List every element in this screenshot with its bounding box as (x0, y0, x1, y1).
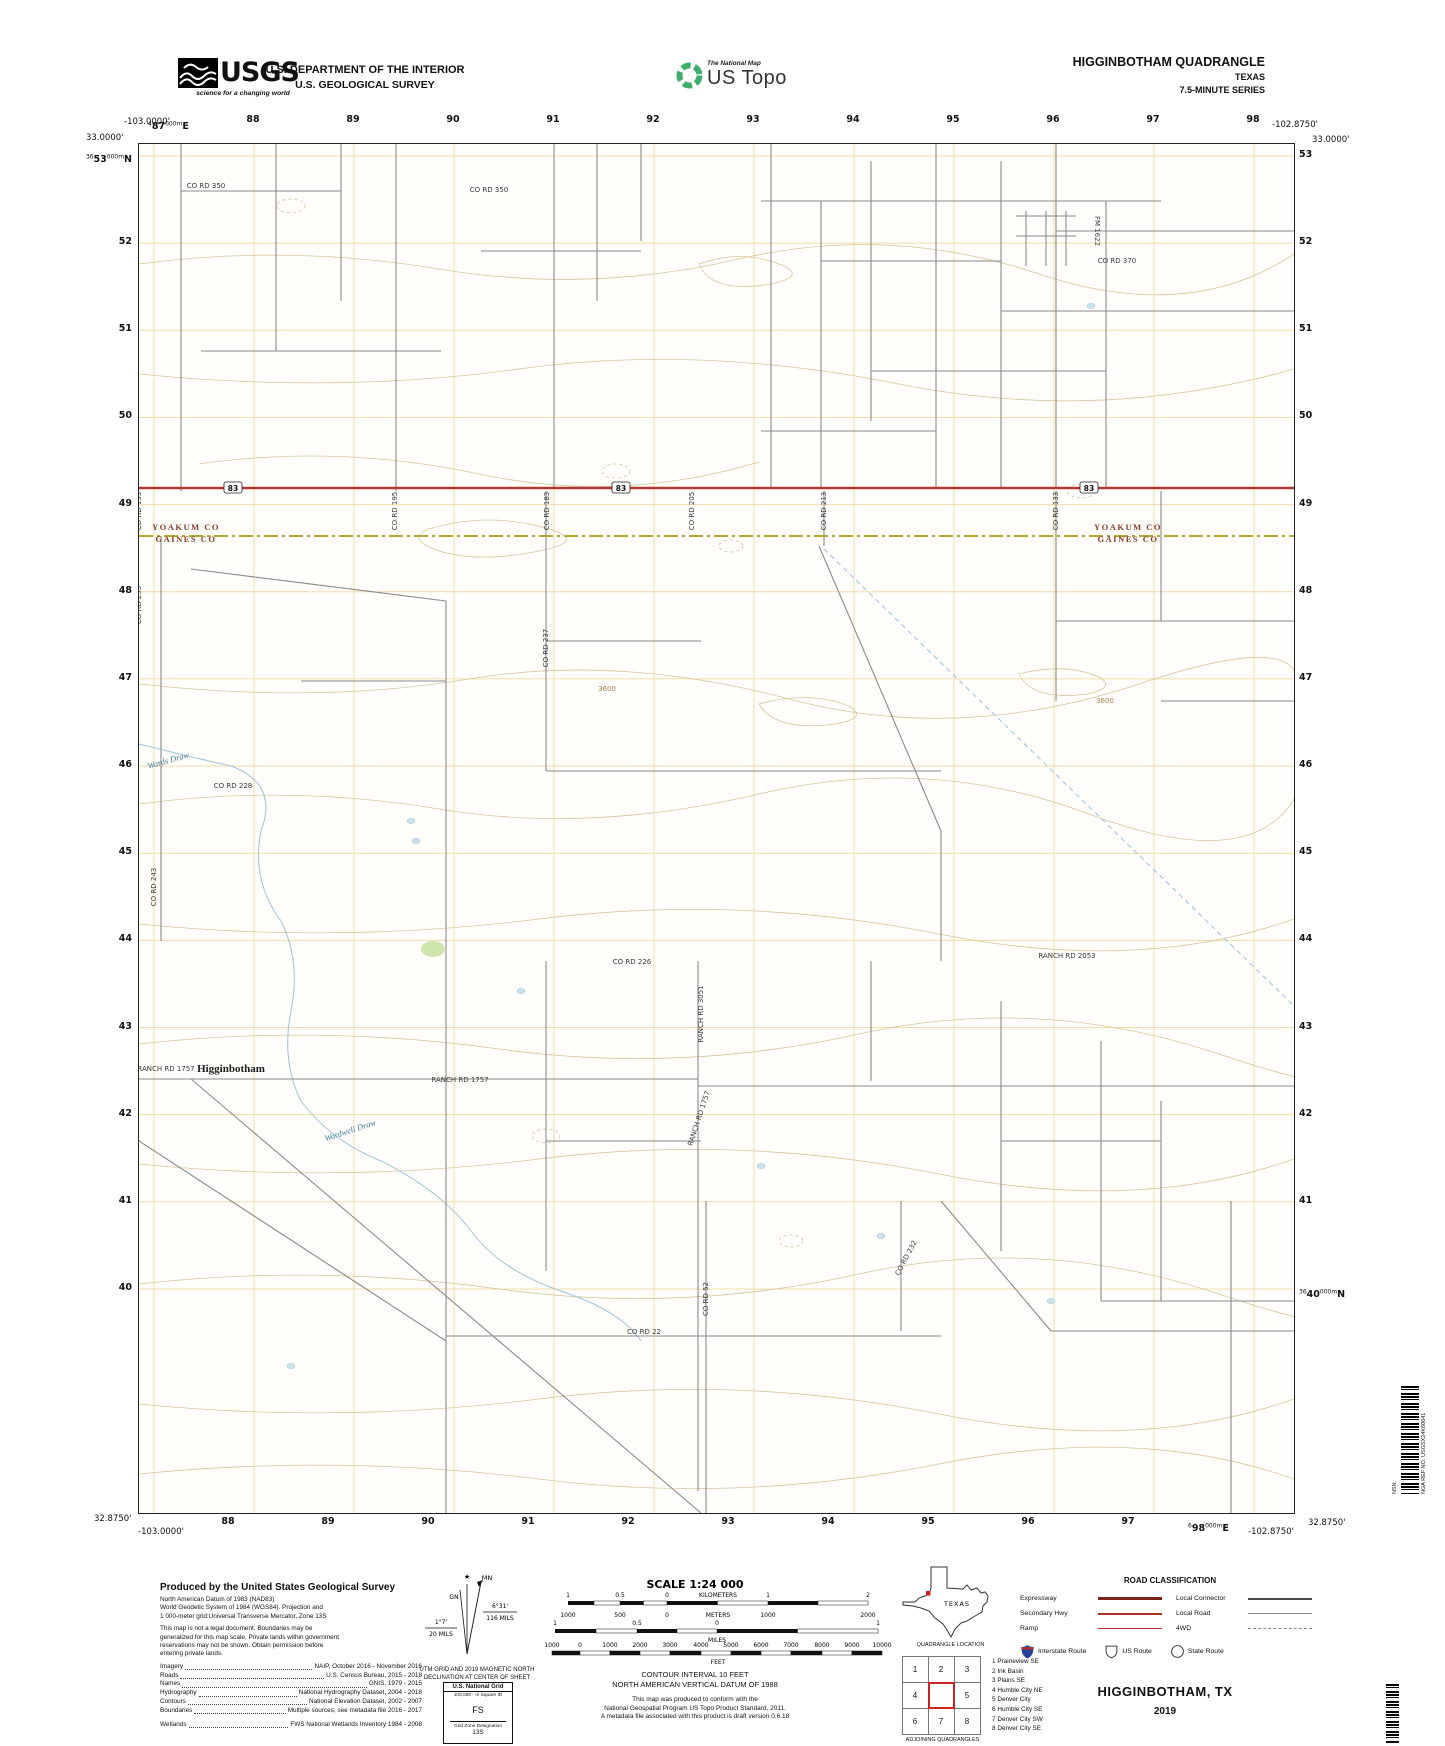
adjoining-cell: 5 (954, 1682, 981, 1709)
svg-text:1000: 1000 (602, 1642, 617, 1649)
grid-easting-top: 88 (238, 114, 268, 125)
road-classification-block: ROAD CLASSIFICATION ExpresswayLocal Conn… (1020, 1576, 1320, 1659)
stream-layer (139, 744, 641, 1341)
barcode (1401, 1386, 1419, 1494)
svg-text:FEET: FEET (711, 1659, 726, 1666)
map-label: CO RD 243 (150, 868, 158, 906)
dept-line2: U.S. GEOLOGICAL SURVEY (230, 79, 500, 91)
grid-northing-right: 41 (1299, 1195, 1339, 1206)
grid-northing-right: 43 (1299, 1021, 1339, 1032)
quadrangle-location-caption: QUADRANGLE LOCATION (893, 1642, 1008, 1648)
svg-text:METERS: METERS (706, 1612, 731, 1619)
map-label: CO RD 205 (688, 492, 696, 530)
grid-northing-left: 43 (98, 1021, 132, 1032)
dept-line1: U.S. DEPARTMENT OF THE INTERIOR (230, 64, 500, 76)
map-label: CO RD 155 (139, 492, 143, 530)
standard-note-1: This map was produced to conform with th… (530, 1696, 860, 1705)
map-label: CO RD 52 (702, 1282, 710, 1316)
full-easting-bottom-right: 698000mE (1188, 1516, 1229, 1535)
grid-northing-right: 45 (1299, 846, 1339, 857)
map-label: CO RD 228 (214, 782, 252, 790)
contour-note-block: CONTOUR INTERVAL 10 FEET NORTH AMERICAN … (530, 1670, 860, 1722)
route-shield-legend-item: US Route (1104, 1644, 1151, 1659)
pond-layer (287, 304, 1095, 1369)
grid-easting-top: 89 (338, 114, 368, 125)
grid-easting-bottom: 92 (613, 1516, 643, 1527)
svg-text:20 MILS: 20 MILS (429, 1631, 453, 1638)
route-shield-legend-item: Interstate Route (1020, 1644, 1086, 1659)
grid-northing-left: 50 (98, 410, 132, 421)
svg-text:1000: 1000 (560, 1612, 575, 1619)
grid-northing-left: 45 (98, 846, 132, 857)
grid-easting-bottom: 94 (813, 1516, 843, 1527)
usgs-tagline: science for a changing world (178, 90, 308, 97)
nga-ref-label: NGA REF NO. USGSX24K60641 (1421, 1386, 1428, 1494)
map-label: CO RD 233 (139, 586, 143, 624)
usng-zone-label: Grid Zone Designation (444, 1722, 512, 1729)
map-label: CO RD 350 (187, 182, 225, 190)
grid-northing-left: 48 (98, 585, 132, 596)
utm-grid-layer (139, 144, 1294, 1513)
usng-subtitle: 100,000 - m Square ID (444, 1692, 512, 1698)
adjoining-cell: 2 (928, 1656, 955, 1683)
grid-northing-right: 46 (1299, 759, 1339, 770)
legal-lines: This map is not a legal document. Bounda… (160, 1625, 422, 1659)
grid-easting-top: 98 (1238, 114, 1268, 125)
scale-bar-block: SCALE 1:24 00010.5012KILOMETERS100050001… (480, 1576, 910, 1668)
vegetation-patch (421, 941, 445, 957)
svg-text:1: 1 (876, 1620, 880, 1627)
svg-text:1: 1 (766, 1592, 770, 1599)
map-label: Wardwell Draw (323, 1117, 377, 1143)
credit-row: BoundariesMultiple sources; see metadata… (160, 1707, 422, 1716)
map-label: RANCH RD 1757 (139, 1065, 195, 1073)
grid-northing-left: 40 (98, 1282, 132, 1293)
usng-title: U.S. National Grid (444, 1683, 512, 1692)
svg-text:SCALE 1:24 000: SCALE 1:24 000 (646, 1578, 743, 1591)
adjoining-cell: 3 (954, 1656, 981, 1683)
interstate-shield-icon (1020, 1644, 1035, 1659)
map-label: GAINES CO (1098, 534, 1159, 544)
map-label: CO RD 237 (542, 629, 550, 667)
svg-text:0: 0 (715, 1620, 719, 1627)
nsn-label: NSN. (1392, 1386, 1399, 1494)
grid-northing-right: 53 (1299, 149, 1339, 160)
state-outline-texas: TEXAS (895, 1566, 1005, 1640)
national-map-label: The National Map (707, 60, 787, 67)
svg-text:GN: GN (449, 1594, 458, 1601)
svg-text:1000: 1000 (544, 1642, 559, 1649)
datum-line: North American Datum of 1983 (NAD83) (160, 1596, 422, 1604)
svg-text:5000: 5000 (723, 1642, 738, 1649)
svg-text:8000: 8000 (814, 1642, 829, 1649)
credit-row: HydrographyNational Hydrography Dataset,… (160, 1689, 422, 1698)
map-label: 3600 (598, 685, 616, 693)
svg-text:7000: 7000 (783, 1642, 798, 1649)
map-label-layer: CO RD 350CO RD 350FM 1622CO RD 370CO RD … (139, 182, 1162, 1336)
grid-northing-right: 42 (1299, 1108, 1339, 1119)
svg-text:1000: 1000 (760, 1612, 775, 1619)
road-class-row: ExpresswayLocal Connector (1020, 1591, 1320, 1606)
road-classification-rows: ExpresswayLocal ConnectorSecondary HwyLo… (1020, 1591, 1320, 1636)
svg-text:83: 83 (1084, 484, 1094, 493)
legal-line: generalized for this map scale. Private … (160, 1634, 422, 1642)
sheet-name: HIGGINBOTHAM, TX (1050, 1684, 1280, 1699)
adjoining-cell: 4 (902, 1682, 929, 1709)
map-label: CO RD 22 (627, 1328, 661, 1336)
map-label: RANCH RD 1757 (686, 1090, 711, 1147)
map-label: Higginbotham (197, 1063, 265, 1075)
depression-contour-layer (277, 199, 1095, 1247)
map-label: RANCH RD 2053 (1038, 952, 1095, 960)
map-label: CO RD 226 (613, 958, 652, 966)
standard-note-3: A metadata file associated with this pro… (530, 1713, 860, 1722)
svg-text:6000: 6000 (753, 1642, 768, 1649)
adjoining-grid: 12345678 (902, 1656, 980, 1734)
svg-text:0: 0 (665, 1592, 669, 1599)
adjoining-name: 2 Ink Basin (992, 1667, 1102, 1677)
grid-easting-top: 92 (638, 114, 668, 125)
svg-text:3000: 3000 (662, 1642, 677, 1649)
grid-easting-bottom: 93 (713, 1516, 743, 1527)
road-classification-title: ROAD CLASSIFICATION (1020, 1576, 1320, 1585)
map-label: CO RD 370 (1098, 257, 1136, 265)
full-easting-top-left: 487000mE (148, 114, 189, 133)
true-north-star: ★ (464, 1573, 470, 1581)
svg-text:9000: 9000 (844, 1642, 859, 1649)
map-canvas: 838383 CO RD 350CO RD 350FM 1622CO RD 37… (139, 144, 1294, 1513)
ustopo-circle-icon (676, 62, 703, 89)
grid-easting-bottom: 96 (1013, 1516, 1043, 1527)
grid-northing-right: 48 (1299, 585, 1339, 596)
svg-text:0.5: 0.5 (615, 1592, 625, 1599)
grid-easting-bottom: 91 (513, 1516, 543, 1527)
grid-easting-bottom: 88 (213, 1516, 243, 1527)
department-heading: U.S. DEPARTMENT OF THE INTERIOR U.S. GEO… (230, 64, 500, 91)
grid-easting-top: 90 (438, 114, 468, 125)
grid-northing-right: 49 (1299, 498, 1339, 509)
barcode-lower (1386, 1684, 1399, 1744)
full-northing-right-bottom: 3640000mN (1299, 1282, 1345, 1301)
grid-easting-bottom: 90 (413, 1516, 443, 1527)
corner-top-left-lon: -103.0000' (124, 117, 170, 127)
sheet-title-block: HIGGINBOTHAM, TX 2019 (1050, 1684, 1280, 1717)
legal-line: This map is not a legal document. Bounda… (160, 1625, 422, 1633)
map-label: CO RD 213 (820, 492, 828, 530)
corner-bottom-left-lat: 32.8750' (94, 1514, 132, 1524)
legal-line: reservations may not be shown. Obtain pe… (160, 1642, 422, 1650)
grid-northing-right: 52 (1299, 236, 1339, 247)
us-topo-map-sheet: USGS science for a changing world U.S. D… (0, 0, 1445, 1746)
full-northing-left-top: 3653000mN (58, 147, 132, 166)
grid-easting-top: 93 (738, 114, 768, 125)
usng-square-id: FS (444, 1698, 512, 1721)
adjoining-cell: 6 (902, 1708, 929, 1735)
grid-northing-left: 47 (98, 672, 132, 683)
svg-text:0.5: 0.5 (632, 1620, 642, 1627)
corner-top-left-lat: 33.0000' (86, 133, 124, 143)
quad-series: 7.5-MINUTE SERIES (1000, 85, 1265, 95)
grid-easting-top: 97 (1138, 114, 1168, 125)
usng-box: U.S. National Grid 100,000 - m Square ID… (443, 1682, 513, 1744)
svg-text:0: 0 (578, 1642, 582, 1649)
adjoining-cell: 1 (902, 1656, 929, 1683)
corner-bottom-right-lon: -102.8750' (1248, 1527, 1294, 1537)
adjoining-cell (928, 1682, 955, 1709)
svg-text:1°7': 1°7' (435, 1619, 448, 1626)
produced-by-block: Produced by the United States Geological… (160, 1582, 422, 1729)
legal-line: entering private lands. (160, 1650, 422, 1658)
ustopo-label: US Topo (707, 67, 787, 90)
road-class-row: Ramp4WD (1020, 1621, 1320, 1636)
us-route-shield-icon (1104, 1644, 1119, 1659)
svg-text:2: 2 (866, 1592, 870, 1599)
pipeline-dashed-line (824, 549, 1294, 1006)
route-shield-legend: Interstate RouteUS RouteState Route (1020, 1644, 1320, 1659)
svg-text:KILOMETERS: KILOMETERS (699, 1592, 737, 1599)
map-label: CO RD 232 (894, 1239, 919, 1277)
map-label: RANCH RD 3051 (697, 985, 705, 1042)
grid-northing-right: 50 (1299, 410, 1339, 421)
map-label: CO RD 133 (1052, 492, 1060, 530)
route-shield-legend-item: State Route (1170, 1644, 1224, 1659)
adjoining-cell: 8 (954, 1708, 981, 1735)
grid-easting-top: 94 (838, 114, 868, 125)
svg-text:83: 83 (616, 484, 626, 493)
map-label: FM 1622 (1093, 216, 1101, 246)
road-class-row: Secondary HwyLocal Road (1020, 1606, 1320, 1621)
contour-layer (139, 245, 1294, 1489)
grid-northing-left: 44 (98, 933, 132, 944)
produced-title: Produced by the United States Geological… (160, 1582, 422, 1593)
map-area: 838383 CO RD 350CO RD 350FM 1622CO RD 37… (138, 143, 1295, 1514)
quad-title: HIGGINBOTHAM QUADRANGLE (1000, 55, 1265, 69)
usgs-wave-icon (178, 58, 218, 88)
map-label: CO RD 183 (543, 492, 551, 530)
svg-text:4000: 4000 (693, 1642, 708, 1649)
datum-lines: North American Datum of 1983 (NAD83)Worl… (160, 1596, 422, 1621)
grid-easting-bottom: 95 (913, 1516, 943, 1527)
quad-state: TEXAS (1000, 72, 1265, 82)
grid-northing-right: 47 (1299, 672, 1339, 683)
corner-bottom-left-lon: -103.0000' (138, 1527, 184, 1537)
grid-easting-bottom: 89 (313, 1516, 343, 1527)
credit-row: ContoursNational Elevation Dataset, 2002… (160, 1698, 422, 1707)
map-label: YOAKUM CO (1094, 522, 1162, 532)
map-label: GAINES CO (156, 534, 217, 544)
corner-top-right-lat: 33.0000' (1312, 135, 1350, 145)
state-route-circle-icon (1170, 1644, 1185, 1659)
svg-text:83: 83 (228, 484, 238, 493)
map-label: Wards Draw (146, 749, 190, 770)
svg-text:500: 500 (614, 1612, 626, 1619)
grid-northing-left: 51 (98, 323, 132, 334)
grid-northing-left: 52 (98, 236, 132, 247)
ustopo-logo: The National Map US Topo (676, 60, 787, 90)
adjoining-caption: ADJOINING QUADRANGLES (880, 1737, 1005, 1743)
corner-top-right-lon: -102.8750' (1272, 120, 1318, 130)
grid-easting-top: 96 (1038, 114, 1068, 125)
roads-layer (139, 144, 1294, 1513)
credit-row: WetlandsFWS National Wetlands Inventory … (160, 1721, 422, 1730)
quadrangle-title-block: HIGGINBOTHAM QUADRANGLE TEXAS 7.5-MINUTE… (1000, 55, 1265, 95)
sheet-year: 2019 (1050, 1706, 1280, 1717)
map-label: CO RD 195 (391, 492, 399, 530)
usng-zone-value: 13S (444, 1729, 512, 1736)
map-label: 3600 (1096, 697, 1114, 705)
adjoining-cell: 7 (928, 1708, 955, 1735)
grid-easting-top: 91 (538, 114, 568, 125)
svg-text:2000: 2000 (860, 1612, 875, 1619)
svg-text:2000: 2000 (632, 1642, 647, 1649)
map-label: YOAKUM CO (152, 522, 220, 532)
vertical-datum: NORTH AMERICAN VERTICAL DATUM OF 1988 (530, 1680, 860, 1690)
svg-text:1: 1 (566, 1592, 570, 1599)
standard-note-2: National Geospatial Program US Topo Prod… (530, 1705, 860, 1714)
adjoining-name: 8 Denver City SE (992, 1724, 1102, 1734)
grid-northing-right: 44 (1299, 933, 1339, 944)
corner-bottom-right-lat: 32.8750' (1308, 1518, 1346, 1528)
svg-text:TEXAS: TEXAS (943, 1600, 970, 1608)
datum-line: World Geodetic System of 1984 (WGS84). P… (160, 1604, 422, 1612)
grid-easting-top: 95 (938, 114, 968, 125)
map-label: CO RD 350 (470, 186, 508, 194)
datum-line: 1 000-meter grid:Universal Transverse Me… (160, 1613, 422, 1621)
grid-northing-right: 51 (1299, 323, 1339, 334)
svg-text:1: 1 (553, 1620, 557, 1627)
svg-text:10000: 10000 (872, 1642, 891, 1649)
grid-northing-left: 46 (98, 759, 132, 770)
quad-location-marker (926, 1591, 931, 1596)
grid-northing-left: 49 (98, 498, 132, 509)
contour-interval: CONTOUR INTERVAL 10 FEET (530, 1670, 860, 1680)
map-label: RANCH RD 1757 (431, 1076, 488, 1084)
grid-northing-left: 41 (98, 1195, 132, 1206)
grid-easting-bottom: 97 (1113, 1516, 1143, 1527)
nsn-barcode-block: NSN. NGA REF NO. USGSX24K60641 (1392, 1386, 1428, 1494)
svg-text:0: 0 (665, 1612, 669, 1619)
grid-northing-left: 42 (98, 1108, 132, 1119)
